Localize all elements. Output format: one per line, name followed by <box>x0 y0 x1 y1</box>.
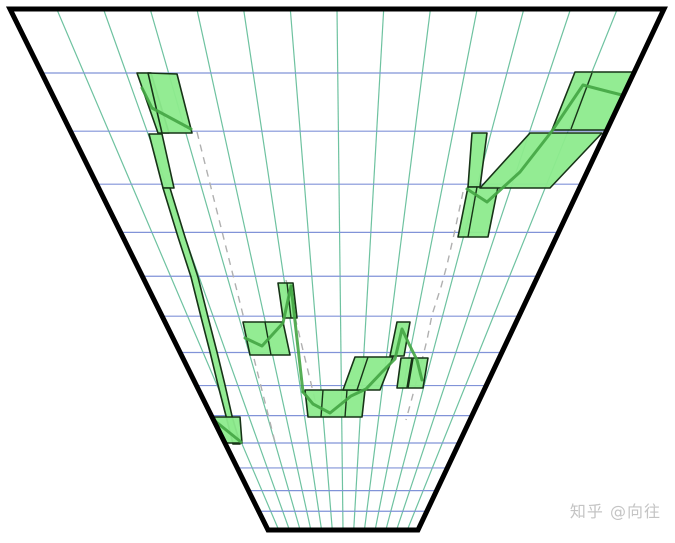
candles <box>137 72 635 444</box>
candle-left-sliver <box>149 134 174 188</box>
chart-canvas <box>0 0 675 543</box>
funnel-chart: 知乎 @向往 <box>0 0 675 543</box>
chart-frame <box>10 9 664 530</box>
candle-right-thin <box>468 133 487 187</box>
watermark: 知乎 @向往 <box>570 498 661 522</box>
